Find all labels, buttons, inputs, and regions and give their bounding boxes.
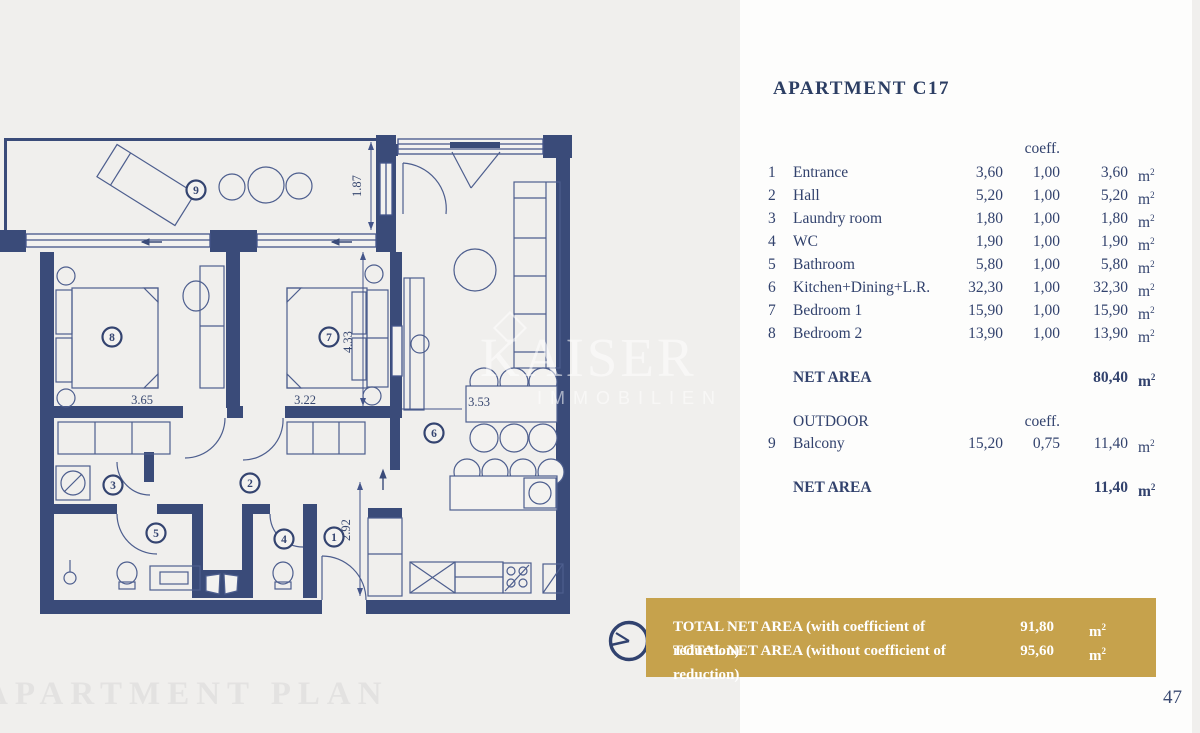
direction-arrows bbox=[142, 239, 386, 490]
brochure-page: { "page": { "footer_title": "APARTMENT P… bbox=[0, 0, 1200, 733]
svg-text:1: 1 bbox=[331, 532, 337, 544]
svg-text:6: 6 bbox=[431, 428, 437, 440]
row-result: 13,90 bbox=[1060, 322, 1128, 349]
net-area-row: NET AREA 80,40 m2 bbox=[768, 366, 1162, 393]
room-badge-2: 2 bbox=[241, 474, 260, 493]
dim-balcony-depth: 1.87 bbox=[350, 175, 364, 197]
coeff-header: coeff. bbox=[1003, 137, 1060, 160]
row-area: 15,20 bbox=[938, 432, 1003, 459]
outdoor-net-area-row: NET AREA 11,40 m2 bbox=[768, 476, 1162, 503]
row-num: 8 bbox=[768, 322, 793, 349]
room-badge-8: 8 bbox=[103, 328, 122, 347]
svg-text:9: 9 bbox=[193, 185, 199, 197]
row-result: 11,40 bbox=[1060, 432, 1128, 459]
svg-text:3: 3 bbox=[110, 480, 116, 492]
room-badge-3: 3 bbox=[104, 476, 123, 495]
table-row: 9 Balcony 15,20 0,75 11,40 m2 bbox=[768, 432, 1162, 459]
outdoor-net-unit: m2 bbox=[1128, 476, 1162, 503]
outdoor-header-row: OUTDOOR coeff. bbox=[768, 410, 1162, 433]
clock-icon bbox=[607, 619, 651, 663]
outdoor-label: OUTDOOR bbox=[793, 410, 938, 433]
room-badge-9: 9 bbox=[187, 181, 206, 200]
outdoor-net-label: NET AREA bbox=[793, 476, 938, 503]
room-badge-1: 1 bbox=[325, 528, 344, 547]
floor-plan: 1.87 4.33 2.92 3.65 3.22 3.53 1 2 3 4 5 … bbox=[0, 130, 620, 630]
dim-bedroom2-width: 3.65 bbox=[131, 393, 153, 407]
net-area-unit: m2 bbox=[1128, 366, 1162, 393]
banner-label: TOTAL NET AREA (without coefficient of r… bbox=[673, 639, 994, 687]
room-badge-7: 7 bbox=[320, 328, 339, 347]
outdoor-coeff-header: coeff. bbox=[1003, 410, 1060, 433]
row-name: Bedroom 2 bbox=[793, 322, 938, 349]
row-num: 9 bbox=[768, 432, 793, 459]
footer-section-title: APARTMENT PLAN bbox=[0, 676, 389, 713]
room-badge-6: 6 bbox=[425, 424, 444, 443]
svg-text:2: 2 bbox=[247, 478, 253, 490]
dim-dining-width: 3.53 bbox=[468, 395, 490, 409]
room-badge-4: 4 bbox=[275, 530, 294, 549]
plan-windows bbox=[26, 139, 543, 247]
page-title: APARTMENT C17 bbox=[773, 78, 950, 100]
wall-niche bbox=[392, 326, 402, 376]
dim-bedroom1-width: 3.22 bbox=[294, 393, 316, 407]
svg-text:8: 8 bbox=[109, 332, 115, 344]
banner-row: TOTAL NET AREA (without coefficient of r… bbox=[646, 639, 1156, 663]
row-coeff: 0,75 bbox=[1003, 432, 1060, 459]
row-unit: m2 bbox=[1128, 432, 1162, 459]
row-unit: m2 bbox=[1128, 322, 1162, 349]
net-area-value: 80,40 bbox=[1060, 366, 1128, 393]
row-area: 13,90 bbox=[938, 322, 1003, 349]
banner-unit: m2 bbox=[1054, 639, 1106, 687]
outdoor-net-value: 11,40 bbox=[1060, 476, 1128, 503]
svg-text:7: 7 bbox=[326, 332, 332, 344]
dim-bedroom1-depth: 4.33 bbox=[341, 331, 355, 353]
row-name: Balcony bbox=[793, 432, 938, 459]
total-net-area-banner: TOTAL NET AREA (with coefficient of redu… bbox=[646, 598, 1156, 677]
banner-value: 95,60 bbox=[994, 639, 1054, 687]
svg-text:4: 4 bbox=[281, 534, 287, 546]
row-coeff: 1,00 bbox=[1003, 322, 1060, 349]
page-number: 47 bbox=[1150, 687, 1182, 709]
table-header-row: coeff. bbox=[768, 137, 1162, 160]
banner-row: TOTAL NET AREA (with coefficient of redu… bbox=[646, 615, 1156, 639]
svg-text:5: 5 bbox=[153, 528, 159, 540]
table-row: 8 Bedroom 2 13,90 1,00 13,90 m2 bbox=[768, 322, 1162, 349]
net-area-label: NET AREA bbox=[793, 366, 938, 393]
room-badge-5: 5 bbox=[147, 524, 166, 543]
